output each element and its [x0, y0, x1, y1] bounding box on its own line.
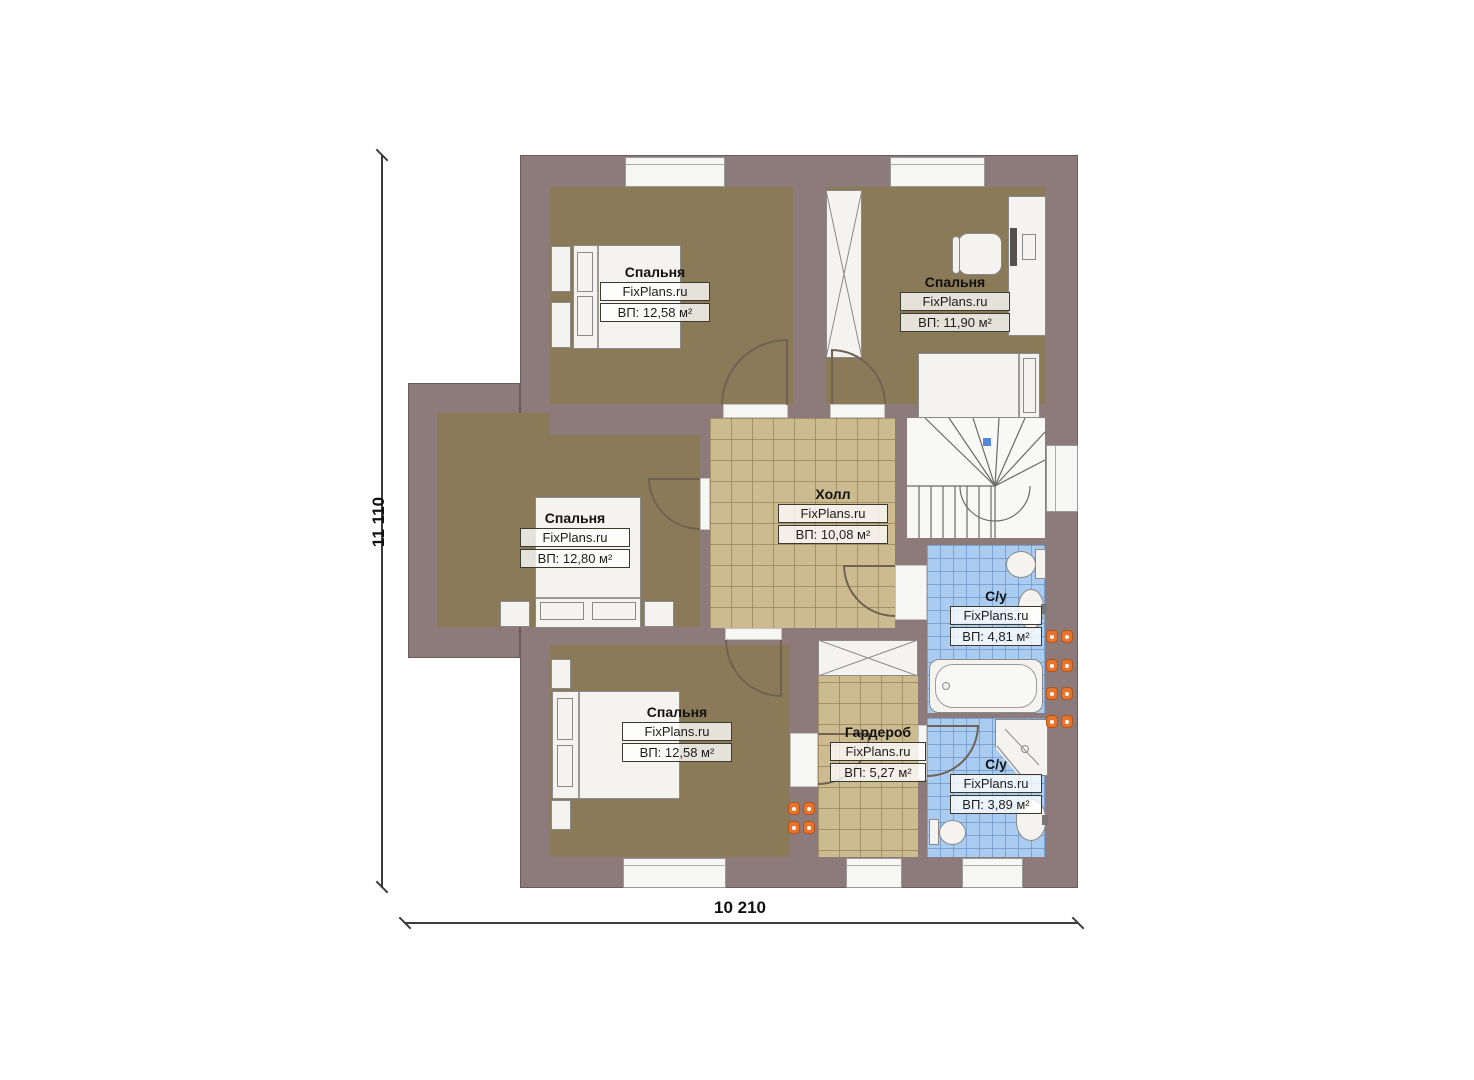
room-label-bathroom-lower: С/у FixPlans.ru ВП: 3,89 м²: [950, 756, 1042, 814]
door-bed2-hall: [830, 404, 885, 418]
pillow: [577, 296, 593, 336]
watermark: FixPlans.ru: [830, 742, 926, 761]
room-area: ВП: 12,80 м²: [520, 549, 630, 568]
room-name: С/у: [985, 588, 1007, 604]
watermark: FixPlans.ru: [600, 282, 710, 301]
room-name: Спальня: [647, 704, 707, 720]
closet-icon-bed2: [826, 190, 862, 358]
bathtub-drain: [942, 682, 950, 690]
bed-headboard-line: [597, 246, 599, 348]
room-name: Спальня: [545, 510, 605, 526]
room-label-bedroom-bottom-left: Спальня FixPlans.ru ВП: 12,58 м²: [622, 704, 732, 762]
dimension-height-label: 11 110: [369, 472, 389, 572]
room-area: ВП: 4,81 м²: [950, 627, 1042, 646]
door-leaf-bath-lower: [927, 725, 979, 727]
watermark: FixPlans.ru: [950, 774, 1042, 793]
room-name: Спальня: [625, 264, 685, 280]
door-bed4-hall: [725, 628, 782, 640]
toilet-tank: [929, 819, 939, 845]
window-top-2: [890, 157, 985, 187]
room-area: ВП: 3,89 м²: [950, 795, 1042, 814]
pillow: [577, 252, 593, 292]
watermark: FixPlans.ru: [622, 722, 732, 741]
door-bed4-wardrobe: [790, 733, 818, 787]
window-right-stairwell: [1046, 445, 1078, 512]
radiator: [788, 821, 815, 834]
room-name: Гардероб: [845, 724, 911, 740]
door-leaf-bath-upper: [843, 565, 895, 567]
room-area: ВП: 11,90 м²: [900, 313, 1010, 332]
nightstand: [551, 302, 571, 348]
room-area: ВП: 10,08 м²: [778, 525, 888, 544]
watermark: FixPlans.ru: [900, 292, 1010, 311]
nightstand: [551, 800, 571, 830]
pillow: [557, 698, 573, 740]
watermark: FixPlans.ru: [950, 606, 1042, 625]
toilet-bowl: [1006, 551, 1036, 578]
radiator: [1046, 659, 1073, 672]
dimension-width-label: 10 210: [680, 898, 800, 918]
door-leaf-bed3: [648, 478, 700, 480]
radiator: [1046, 630, 1073, 643]
nightstand: [551, 659, 571, 689]
bed-headboard-line: [536, 597, 640, 599]
radiator: [1046, 687, 1073, 700]
room-label-bathroom-upper: С/у FixPlans.ru ВП: 4,81 м²: [950, 588, 1042, 646]
room-area: ВП: 12,58 м²: [622, 743, 732, 762]
room-label-bedroom-top-right: Спальня FixPlans.ru ВП: 11,90 м²: [900, 274, 1010, 332]
window-bottom-2: [846, 858, 902, 888]
window-top-1: [625, 157, 725, 187]
office-chair: [958, 233, 1002, 275]
room-name: С/у: [985, 756, 1007, 772]
window-bottom-1: [623, 858, 726, 888]
watermark: FixPlans.ru: [520, 528, 630, 547]
toilet-tank: [1035, 549, 1046, 579]
sink-tap: [1042, 815, 1048, 825]
door-bed3-hall: [700, 478, 710, 530]
dimension-line-horizontal: [405, 922, 1078, 924]
pillow: [540, 602, 584, 620]
pillow: [592, 602, 636, 620]
room-label-hall: Холл FixPlans.ru ВП: 10,08 м²: [778, 486, 888, 544]
bed: [918, 353, 1040, 418]
door-leaf-bed2: [831, 349, 833, 404]
pillow: [557, 745, 573, 787]
stairs: [907, 418, 1045, 538]
door-hall-bath-upper: [895, 565, 927, 620]
bed-headboard-line: [1018, 354, 1020, 417]
room-area: ВП: 5,27 м²: [830, 763, 926, 782]
closet-icon-wardrobe: [818, 640, 918, 676]
floor-plan-canvas: Спальня FixPlans.ru ВП: 12,58 м² Спальня…: [0, 0, 1474, 1080]
watermark: FixPlans.ru: [778, 504, 888, 523]
bed-headboard-line: [578, 692, 580, 798]
door-leaf-bed4: [780, 640, 782, 697]
room-name: Холл: [815, 486, 850, 502]
toilet-bowl: [939, 820, 966, 845]
nightstand: [644, 601, 674, 627]
room-label-bedroom-middle-left: Спальня FixPlans.ru ВП: 12,80 м²: [520, 510, 630, 568]
desk: [1008, 196, 1046, 336]
room-name: Спальня: [925, 274, 985, 290]
keyboard: [1022, 234, 1036, 260]
bathtub-inner: [935, 664, 1037, 708]
monitor: [1010, 228, 1017, 266]
window-bottom-3: [962, 858, 1023, 888]
wall-bed1-bed3: [550, 404, 710, 435]
room-area: ВП: 12,58 м²: [600, 303, 710, 322]
radiator: [1046, 715, 1073, 728]
room-label-wardrobe: Гардероб FixPlans.ru ВП: 5,27 м²: [830, 724, 926, 782]
door-bed1-hall: [723, 404, 788, 418]
radiator: [788, 802, 815, 815]
door-leaf-bed1: [786, 339, 788, 405]
chair-backrest: [952, 236, 960, 274]
nightstand: [500, 601, 530, 627]
pillow: [1023, 358, 1036, 413]
room-label-bedroom-top-left: Спальня FixPlans.ru ВП: 12,58 м²: [600, 264, 710, 322]
nightstand: [551, 246, 571, 292]
